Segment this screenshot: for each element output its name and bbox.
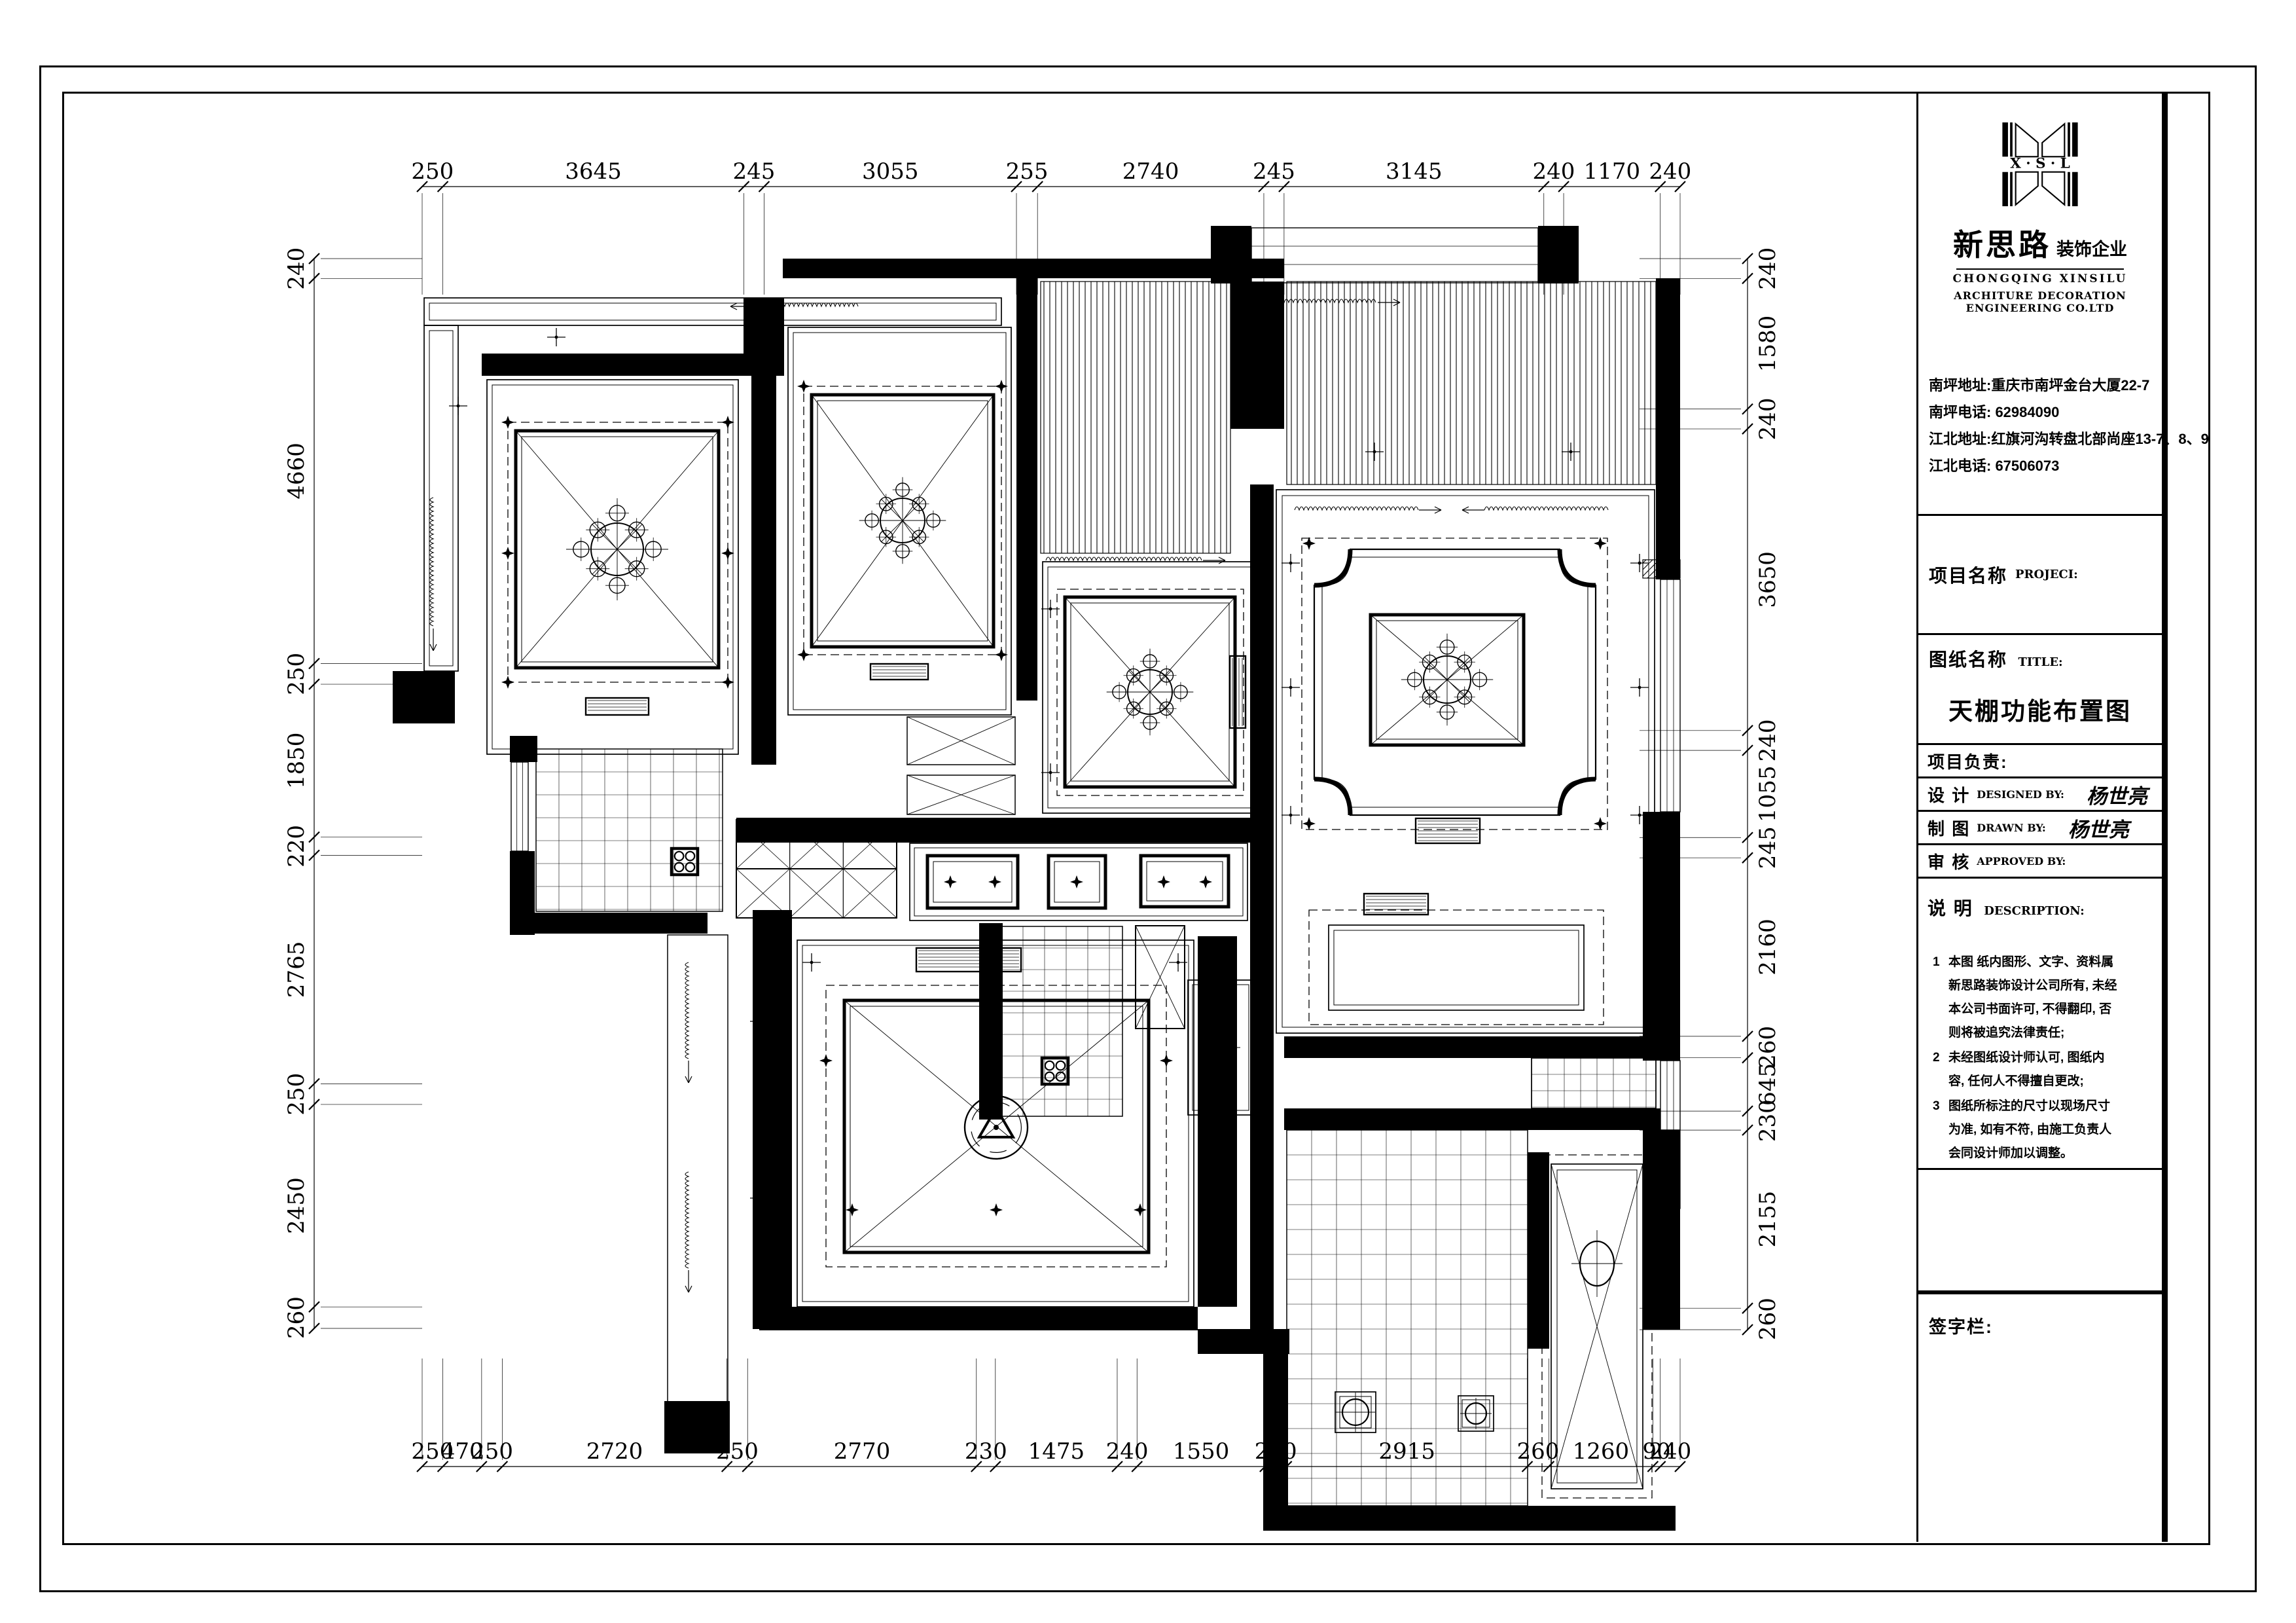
designer-name: 杨世亮 [2087,780,2147,809]
drawn-by-label-en: DRAWN BY: [1977,822,2046,834]
drawing-title-section: 图纸名称 TITLE: 天棚功能布置图 [1918,635,2162,745]
drawing-title-label-en: TITLE: [2018,655,2062,669]
description-item: 1 本图 纸内图形、文字、资料属新思路装饰设计公司所有, 未经本公司书面许可, … [1933,951,2162,1045]
svg-text:250: 250 [471,1438,513,1465]
svg-text:220: 220 [283,825,310,867]
svg-text:1550: 1550 [1173,1438,1230,1465]
drafter-name: 杨世亮 [2068,813,2129,843]
svg-text:2450: 2450 [283,1177,310,1234]
svg-text:3145: 3145 [1386,158,1443,185]
drawn-by-label-cn: 制 图 [1928,816,1970,840]
brand-name-cn: 新思路 [1953,228,2051,262]
svg-text:2720: 2720 [586,1438,643,1465]
svg-text:255: 255 [1006,158,1049,185]
description-label-cn: 说 明 [1928,898,1973,919]
svg-text:230: 230 [1755,1099,1781,1142]
row-approved-by: 审 核 APPROVED BY: [1918,845,2162,879]
svg-text:240: 240 [1755,397,1781,440]
brand-line: 新思路装饰企业 [1918,221,2162,264]
svg-text:240: 240 [1755,247,1781,290]
svg-text:240: 240 [1649,1438,1691,1465]
svg-text:245: 245 [1253,158,1295,185]
row-designed-by: 设 计 DESIGNED BY: 杨世亮 [1918,778,2162,812]
svg-text:240: 240 [283,247,310,290]
description-items: 1 本图 纸内图形、文字、资料属新思路装饰设计公司所有, 未经本公司书面许可, … [1918,951,2162,1165]
svg-text:250: 250 [283,1073,310,1116]
svg-text:260: 260 [1255,1438,1297,1465]
svg-text:260: 260 [283,1296,310,1339]
row-drawn-by: 制 图 DRAWN BY: 杨世亮 [1918,812,2162,845]
company-addresses: 南坪地址:重庆市南坪金台大厦22-7 南坪电话: 62984090 江北地址:红… [1918,372,2162,479]
svg-text:240: 240 [1649,158,1691,185]
svg-text:250: 250 [283,653,310,695]
drawing-title-value: 天棚功能布置图 [1918,691,2162,727]
description-section: 说 明 DESCRIPTION: 1 本图 纸内图形、文字、资料属新思路装饰设计… [1918,879,2162,1170]
title-block: X · S · L 新思路装饰企业 CHONGQING XINSILU ARCH… [1916,94,2168,1542]
svg-text:250: 250 [716,1438,759,1465]
description-label-en: DESCRIPTION: [1984,904,2085,918]
svg-text:230: 230 [965,1438,1007,1465]
signature-section: 签字栏: [1918,1292,2162,1540]
xsl-logo-icon: X · S · L [2001,122,2079,206]
svg-text:2770: 2770 [834,1438,891,1465]
address-line: 江北地址:红旗河沟转盘北部尚座13-7、8、9 [1929,426,2151,452]
designed-by-label-cn: 设 计 [1928,782,1970,807]
svg-text:1475: 1475 [1028,1438,1085,1465]
svg-text:645: 645 [1755,1063,1781,1106]
description-item: 3 图纸所标注的尺寸以现场尺寸为准, 如有不符, 由施工负责人会同设计师加以调整… [1933,1095,2162,1165]
brand-underline [1956,268,2124,270]
svg-text:260: 260 [1755,1298,1781,1340]
svg-text:2740: 2740 [1122,158,1179,185]
svg-text:245: 245 [1755,826,1781,869]
project-label-en: PROJECI: [2015,568,2078,581]
address-line: 南坪电话: 62984090 [1929,399,2151,426]
svg-text:2155: 2155 [1755,1191,1781,1248]
svg-text:3650: 3650 [1755,551,1781,608]
brand-suffix-cn: 装饰企业 [2056,240,2127,259]
brand-en-line2: ARCHITURE DECORATION ENGINEERING CO.LTD [1918,289,2162,314]
designed-by-label-en: DESIGNED BY: [1977,788,2064,801]
svg-text:4660: 4660 [283,443,310,500]
approved-by-label-cn: 审 核 [1928,849,1970,873]
svg-text:240: 240 [1532,158,1575,185]
svg-text:1850: 1850 [283,733,310,790]
svg-text:1170: 1170 [1584,158,1641,185]
description-item: 2 未经图纸设计师认可, 图纸内容, 任何人不得擅自更改; [1933,1046,2162,1093]
svg-text:250: 250 [411,158,454,185]
drawing-sheet: 2503645245305525527402453145240117024025… [0,0,2296,1623]
brand-en-line1: CHONGQING XINSILU [1918,272,2162,285]
svg-text:240: 240 [1755,719,1781,761]
approved-by-label-en: APPROVED BY: [1977,855,2066,867]
company-header-section: X · S · L 新思路装饰企业 CHONGQING XINSILU ARCH… [1918,94,2162,516]
project-lead-label: 项目负责: [1928,749,2008,773]
spare-section [1918,1170,2162,1292]
svg-text:1260: 1260 [1573,1438,1630,1465]
svg-text:3645: 3645 [565,158,622,185]
svg-text:2160: 2160 [1755,919,1781,976]
svg-text:260: 260 [1755,1026,1781,1068]
svg-text:2915: 2915 [1378,1438,1435,1465]
svg-text:3055: 3055 [862,158,919,185]
project-label-cn: 项目名称 [1929,562,2007,588]
address-line: 江北电话: 67506073 [1929,452,2151,479]
svg-text:260: 260 [1516,1438,1559,1465]
svg-text:X · S · L: X · S · L [2010,155,2070,172]
project-name-section: 项目名称 PROJECI: [1918,516,2162,635]
svg-text:2765: 2765 [283,941,310,998]
svg-text:240: 240 [1106,1438,1149,1465]
svg-text:245: 245 [733,158,776,185]
svg-text:1055: 1055 [1755,765,1781,822]
drawing-title-label-cn: 图纸名称 [1929,649,2007,670]
signature-label: 签字栏: [1929,1317,1993,1337]
address-line: 南坪地址:重庆市南坪金台大厦22-7 [1929,372,2151,399]
svg-text:1580: 1580 [1755,316,1781,373]
row-project-lead: 项目负责: [1918,745,2162,778]
